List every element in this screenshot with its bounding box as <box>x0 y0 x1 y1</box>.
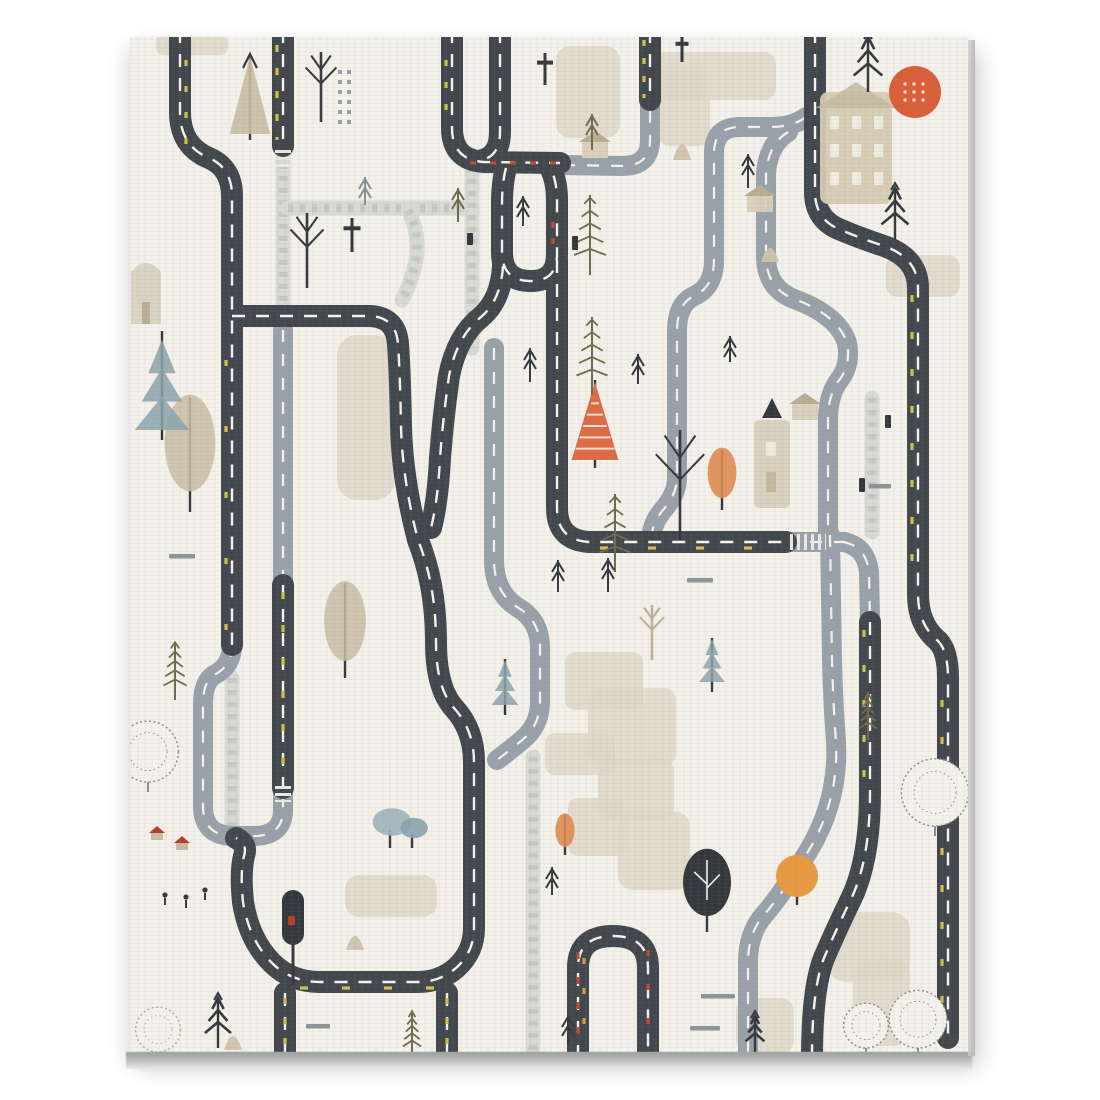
window-dots <box>347 70 351 74</box>
house-window <box>874 116 883 129</box>
tree-poplar-orange-icon <box>555 813 574 847</box>
land-patch <box>618 812 690 890</box>
window-dots <box>338 70 342 74</box>
house-window <box>830 116 839 129</box>
house-small <box>582 142 608 158</box>
window-dots <box>338 120 342 124</box>
road-gray-centerline <box>203 645 283 836</box>
tree-sketchy-icon <box>901 759 968 826</box>
lane-bar <box>701 994 735 999</box>
window-dots <box>338 80 342 84</box>
sun-dot <box>903 98 906 101</box>
tree-poplar-tan-icon <box>324 581 366 661</box>
house-window <box>874 172 883 185</box>
window-dots <box>347 100 351 104</box>
window-dots <box>347 120 351 124</box>
tree-rounded-red-mark <box>288 916 295 925</box>
house-window <box>852 172 861 185</box>
window-dots <box>347 90 351 94</box>
house-window <box>874 144 883 157</box>
sun-dot <box>921 98 924 101</box>
tree-sketchy-icon <box>844 1003 889 1048</box>
tree-sketchy-icon <box>889 990 947 1048</box>
window-dots <box>347 110 351 114</box>
figure-head <box>183 894 188 899</box>
land-patch <box>345 875 437 917</box>
house-window <box>852 116 861 129</box>
window-dots <box>338 110 342 114</box>
land-patch <box>156 37 228 55</box>
canvas-right-edge <box>968 40 975 1056</box>
house-window <box>830 144 839 157</box>
window-dots <box>338 100 342 104</box>
tree-pine-blue-icon <box>498 660 512 677</box>
sun-dot <box>912 82 915 85</box>
figure-head <box>202 887 207 892</box>
house-small <box>747 196 773 212</box>
hut-tiny <box>176 843 188 850</box>
house-small <box>792 404 818 420</box>
tree-cloud-blue-icon <box>400 818 428 838</box>
tree-pine-blue-icon <box>148 340 175 374</box>
roadmap-illustration <box>130 37 968 1052</box>
land-patch <box>568 798 626 856</box>
sun-dot <box>921 82 924 85</box>
hut-arch-door <box>142 302 150 324</box>
post-tick <box>572 236 578 250</box>
photo-page <box>0 0 1100 1100</box>
hut-tiny <box>151 833 163 840</box>
window-dots <box>347 80 351 84</box>
sun-dot <box>912 98 915 101</box>
tower-door <box>766 472 776 492</box>
road-gray <box>843 542 870 622</box>
road-dark <box>578 936 648 1052</box>
house-window <box>852 144 861 157</box>
shrub-cone-icon <box>346 936 364 950</box>
road-dark <box>180 37 232 645</box>
lane-bar <box>690 1026 720 1031</box>
lane-bar <box>869 484 891 489</box>
tower-roof <box>762 398 782 418</box>
window-dots <box>338 90 342 94</box>
lane-bar <box>687 578 713 583</box>
tower-window <box>766 442 776 456</box>
sun-dot <box>903 82 906 85</box>
tree-poplar-orange-icon <box>708 448 737 498</box>
road-dark <box>478 37 500 161</box>
tree-pine-tan-icon <box>230 56 271 134</box>
hut-tiny-red-roof <box>149 826 165 833</box>
sun-dot <box>903 90 906 93</box>
tree-pine-blue-icon <box>706 639 719 655</box>
land-patch <box>658 68 710 146</box>
shrub-cone-icon <box>224 1036 242 1050</box>
tree-sketchy-icon <box>130 721 178 782</box>
tree-round-orange-icon <box>776 855 818 897</box>
post-tick <box>467 233 473 245</box>
tree-sketchy-icon <box>136 1007 181 1052</box>
land-patch <box>337 335 395 500</box>
canvas-artwork <box>130 37 968 1052</box>
sun-dot <box>912 90 915 93</box>
shrub-cone-icon <box>673 144 691 160</box>
hut-tiny-red-roof <box>174 836 190 843</box>
house-small-roof <box>789 393 821 404</box>
canvas-bottom-edge <box>126 1052 972 1069</box>
tower-house <box>754 420 790 508</box>
house-window <box>830 172 839 185</box>
sun-dot <box>921 90 924 93</box>
lane-bar <box>306 1024 330 1029</box>
post-tick <box>859 478 865 492</box>
lane-bar <box>169 554 195 559</box>
post-tick <box>885 415 891 428</box>
figure-head <box>162 892 167 897</box>
